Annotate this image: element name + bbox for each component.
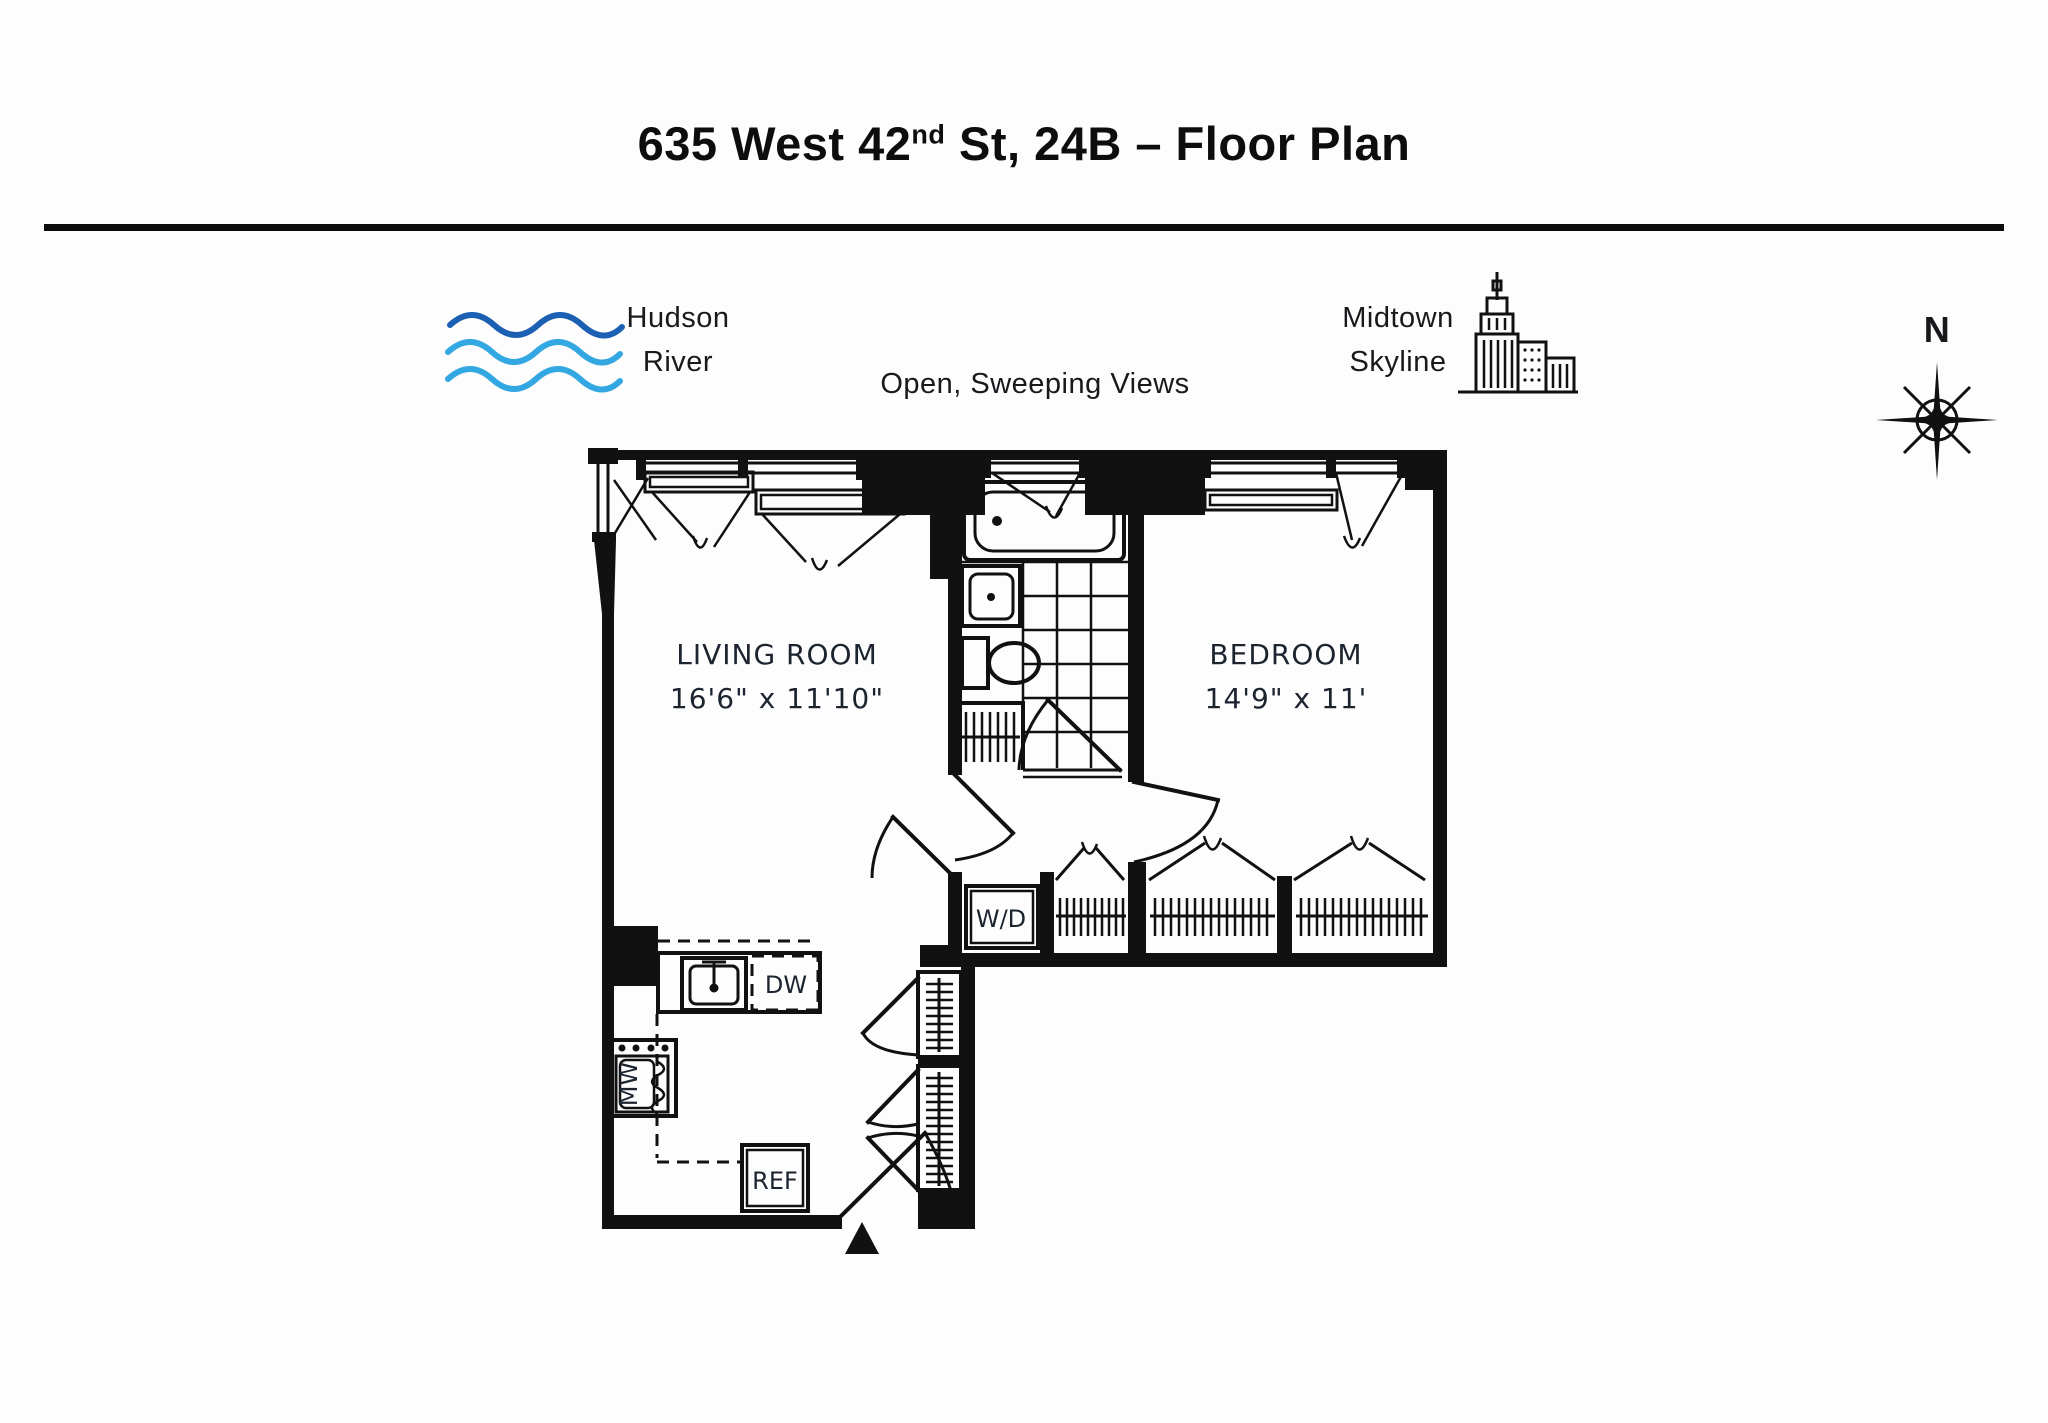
living-room-dims: 16'6" x 11'10" <box>670 682 884 715</box>
windows <box>592 456 1407 542</box>
bathtub-icon <box>964 482 1124 560</box>
mw-label: MW <box>615 1062 643 1106</box>
dw-label: DW <box>765 971 807 999</box>
hudson-waves-icon <box>448 315 622 390</box>
bathroom-door <box>1019 700 1122 777</box>
bathroom <box>952 482 1128 860</box>
bathroom-sink-icon <box>962 566 1020 626</box>
foyer-closet-upper <box>863 972 961 1057</box>
dishwasher: DW <box>752 956 818 1010</box>
window-shade-symbols <box>612 472 1403 570</box>
floor-plan-page: 635 West 42nd St, 24B – Floor Plan Hudso… <box>0 0 2048 1423</box>
foyer-closet-lower <box>868 1066 961 1190</box>
entry-arrow <box>845 1222 879 1254</box>
bedroom-name: BEDROOM <box>1209 638 1362 671</box>
living-room-name: LIVING ROOM <box>676 638 878 671</box>
compass-rose-icon <box>1876 362 1998 480</box>
wd-label: W/D <box>976 905 1026 933</box>
hall-closet <box>1056 842 1126 936</box>
range-microwave: MW <box>612 1040 676 1116</box>
linen-closet <box>952 703 1023 860</box>
hanger-ticks <box>1155 898 1267 936</box>
kitchen-sink-icon <box>682 958 746 1010</box>
refrigerator: REF <box>742 1145 808 1211</box>
bedroom-closet-right <box>1294 836 1428 936</box>
bedroom-dims: 14'9" x 11' <box>1205 682 1368 715</box>
midtown-skyline-icon <box>1458 272 1578 392</box>
ref-label: REF <box>752 1167 798 1195</box>
floor-plan-drawing: W/D <box>0 0 2048 1423</box>
bedroom-door <box>1134 782 1218 862</box>
